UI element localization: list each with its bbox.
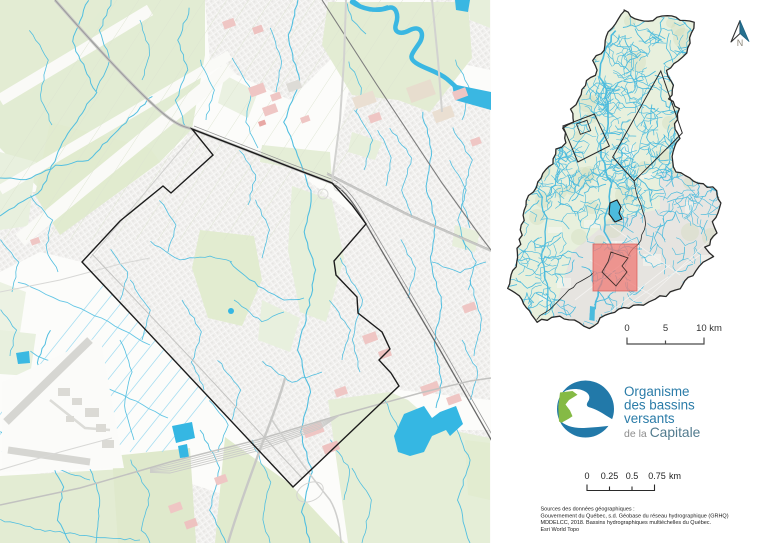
svg-text:MDDELCC, 2018. Bassins hydrogr: MDDELCC, 2018. Bassins hydrographiques m… [541,520,712,526]
svg-text:0.5: 0.5 [626,471,639,481]
svg-text:10 km: 10 km [696,323,722,334]
svg-text:Esri World Topo: Esri World Topo [541,527,580,533]
svg-text:0.25: 0.25 [601,471,619,481]
svg-text:0: 0 [624,323,629,334]
svg-text:5: 5 [663,323,668,334]
svg-text:Gouvernement du Québec, s.d. G: Gouvernement du Québec, s.d. Géobase du … [541,513,729,519]
svg-text:de la Capitale: de la Capitale [624,425,701,440]
svg-text:0: 0 [584,471,589,481]
svg-text:versants: versants [624,411,675,426]
svg-text:N: N [737,38,744,48]
svg-text:0.75: 0.75 [648,471,666,481]
svg-text:km: km [669,471,681,481]
svg-text:Sources des données géographiq: Sources des données géographiques : [541,507,636,513]
